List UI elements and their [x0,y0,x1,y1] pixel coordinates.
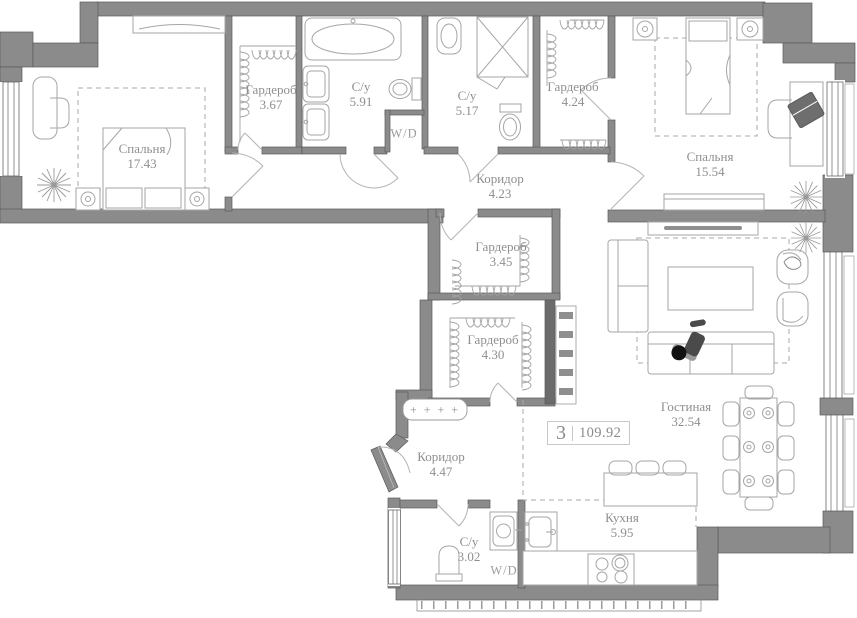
toilet-icon [500,104,522,140]
nightstand-icon [633,18,657,40]
door-wardrobe-1 [238,133,262,150]
desk-icon [33,77,57,139]
door-bedroom-2 [611,162,644,209]
dining-chair-icon [778,470,794,494]
furniture-bathroom-3 [436,512,522,581]
shower-icon [477,17,528,89]
plant-icon [37,168,71,202]
dining-chair-icon [723,402,739,426]
door-wardrobe-4 [490,383,517,402]
nightstand-icon [185,188,209,210]
window-left [0,82,24,176]
sofa-icon [648,332,774,374]
furniture-kitchen [523,461,697,585]
sofa-icon [608,240,648,332]
door-wardrobe-2 [581,78,611,120]
nightstand-icon [76,188,100,210]
doors [232,78,644,526]
armchair-icon [777,292,808,326]
furniture-wardrobe-2 [547,20,606,149]
door-bathroom-3 [437,504,468,526]
toilet-icon [436,546,462,581]
furniture-bathroom-2 [437,17,528,140]
bed-icon [103,128,185,210]
furniture-bathroom-1 [303,18,421,140]
door-bedroom-1 [232,153,263,197]
dresser-icon [664,194,764,210]
dining-chair-icon [745,497,773,510]
floor-plan-canvas [0,0,857,618]
window-living-upper [824,252,854,398]
plant-icon [790,181,822,213]
window-bedroom-2 [825,80,854,178]
sink-icon [303,104,329,140]
dining-chair-icon [778,436,794,460]
door-bathroom-2 [458,154,498,182]
floor-plan: Спальня17.43 Гардероб3.67 С/у5.91 С/у5.1… [0,0,857,618]
bathtub-icon [305,18,401,60]
furniture-wardrobe-1 [240,46,296,142]
balcony-ledge [417,599,701,611]
plant-icon [791,223,822,254]
coffee-table-icon [668,267,753,310]
closet-icon [133,16,225,33]
dining-table-icon [740,398,777,497]
washer-icon [490,512,522,550]
kitchen-sink-icon [525,512,557,551]
dining-chair-icon [745,386,773,399]
kitchen-counter [523,551,697,585]
sink-icon [303,66,329,102]
window-bottom-left [388,508,401,586]
kitchen-zone-dash [523,400,604,500]
bed-icon [686,18,730,114]
door-wardrobe-3 [440,213,478,240]
kitchen-island-icon [604,473,697,506]
nightstand-icon [737,18,763,40]
toilet-icon [389,78,421,100]
armchair-icon [777,250,808,284]
sink-icon [437,18,461,54]
radiator [403,399,467,420]
tv-stand-icon [648,222,758,235]
furniture-wardrobe-4 [450,318,531,390]
door-bathroom-1 [340,154,398,188]
furniture-living-room [608,222,808,510]
dining-chair-icon [723,470,739,494]
dining-chair-icon [778,402,794,426]
dining-chair-icon [723,436,739,460]
shelf-unit [556,306,576,404]
window-living-lower [826,415,854,511]
